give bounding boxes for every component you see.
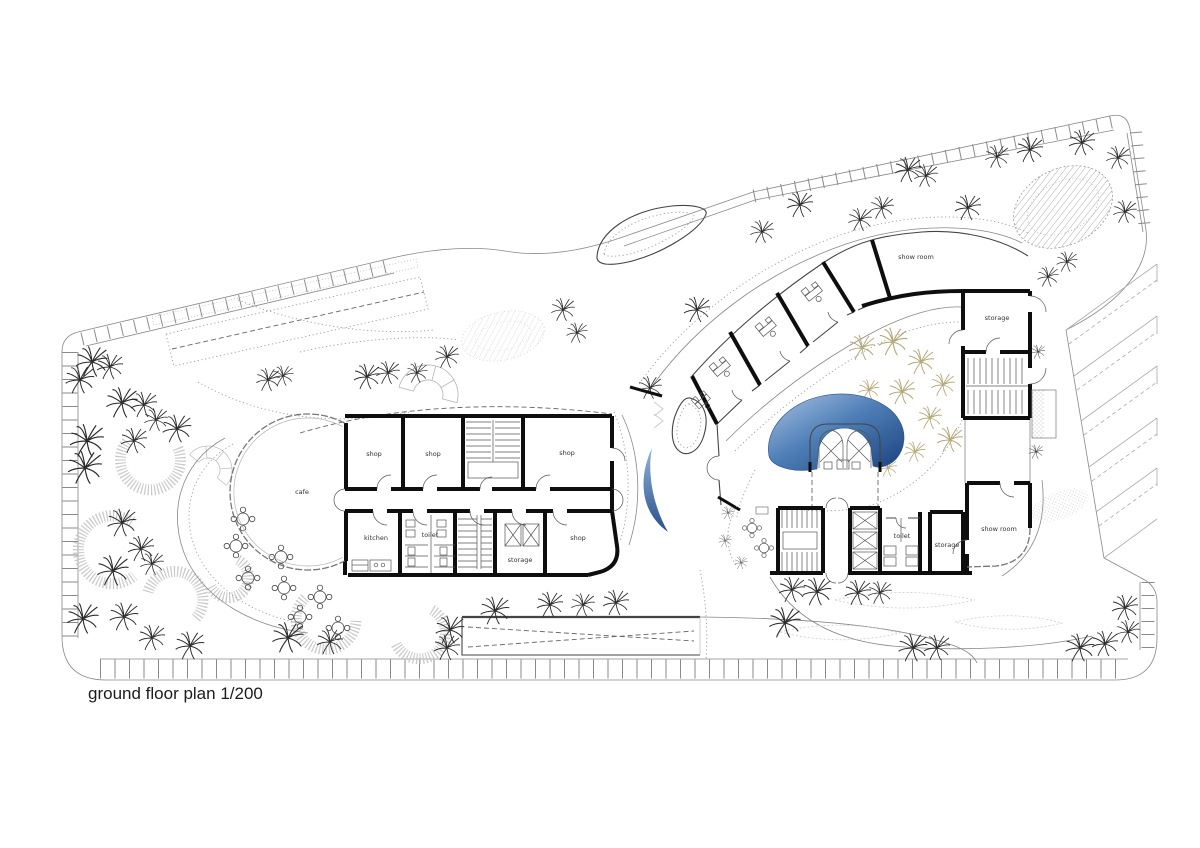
palm-tree-icon <box>1069 130 1095 155</box>
paving-chevrons <box>654 402 663 428</box>
palm-tree-icon <box>1116 620 1139 643</box>
room-label-storage-left: storage <box>508 556 533 564</box>
palm-tree-icon <box>1113 200 1136 223</box>
courtyard-tree-icon <box>937 427 963 452</box>
room-label-toilet-left: toilet <box>422 531 439 539</box>
palm-tree-icon <box>481 597 510 625</box>
palm-tree-icon <box>684 297 710 322</box>
palm-tree-icon <box>354 364 380 389</box>
palm-tree-icon <box>76 346 107 376</box>
palm-tree-icon <box>870 196 893 219</box>
palm-tree-icon <box>567 323 588 343</box>
room-label-shop-2: shop <box>425 450 441 458</box>
south-ramp <box>462 617 977 663</box>
room-label-shop-1: shop <box>366 450 382 458</box>
desk-icon <box>755 316 781 342</box>
palm-tree-icon <box>603 590 629 615</box>
elevator-icon <box>853 512 877 529</box>
palm-tree-icon <box>435 345 458 368</box>
palm-tree-icon <box>899 634 928 662</box>
palm-tree-icon <box>67 603 98 633</box>
plant-icon <box>722 507 735 520</box>
plant-icon <box>719 535 732 548</box>
palm-tree-icon <box>1112 595 1138 620</box>
room-label-kitchen: kitchen <box>364 534 388 542</box>
shrub-bed <box>1027 482 1093 529</box>
palm-tree-icon <box>1031 345 1045 359</box>
plant-icon <box>735 557 748 570</box>
left-building <box>230 407 625 575</box>
courtyard-seating <box>719 506 774 569</box>
round-table-icon <box>754 538 773 557</box>
palm-tree-icon <box>1066 634 1095 662</box>
room-label-shop-3: shop <box>559 449 575 457</box>
desk-icon <box>709 356 735 382</box>
round-table-icon <box>308 585 332 609</box>
palm-tree-icon <box>845 580 871 605</box>
palm-tree-icon <box>571 593 594 616</box>
palm-tree-icon <box>106 387 137 417</box>
palm-tree-icon <box>128 536 154 561</box>
stair-core-top <box>466 420 520 478</box>
leaf-pond <box>597 205 706 264</box>
trees-layer <box>66 130 1140 661</box>
garden-fan-steps <box>190 358 465 485</box>
palm-tree-icon <box>407 363 428 383</box>
palm-tree-icon <box>955 195 981 220</box>
water-feature-icon <box>644 448 668 532</box>
palm-tree-icon <box>985 145 1008 168</box>
room-label-shop-4: shop <box>570 534 586 542</box>
palm-tree-icon <box>787 192 813 217</box>
palm-tree-icon <box>1106 146 1129 169</box>
hatched-garden-ellipse-ne <box>999 150 1126 265</box>
palm-tree-icon <box>1038 267 1059 287</box>
band-door-arcs <box>732 312 838 400</box>
palm-tree-icon <box>139 625 165 650</box>
palm-tree-icon <box>1057 252 1078 272</box>
courtyard-tree-icon <box>905 442 926 462</box>
kitchen-counter <box>352 560 391 571</box>
palm-tree-icon <box>273 366 294 386</box>
courtyard-tree-icon <box>908 349 934 374</box>
courtyard-tree-icon <box>931 373 954 396</box>
palm-tree-icon <box>376 361 399 384</box>
desk-icon <box>801 281 826 307</box>
palm-tree-icon <box>1092 631 1118 656</box>
palm-tree-icon <box>163 415 192 443</box>
left-elevators <box>505 524 539 546</box>
room-label-storage-east: storage <box>985 314 1010 322</box>
round-table-icon <box>742 518 761 537</box>
stair-core-bottom <box>458 515 492 569</box>
palm-tree-icon <box>537 592 563 617</box>
palm-tree-icon <box>70 424 104 457</box>
palm-tree-icon <box>1017 137 1043 162</box>
room-label-show-room-top: show room <box>898 253 934 261</box>
drawing-title: ground floor plan 1/200 <box>88 684 263 703</box>
room-label-show-room-south: show room <box>981 525 1017 533</box>
courtyard-tree-icon <box>889 379 915 404</box>
elevator-icon <box>853 552 877 569</box>
round-table-icon <box>272 576 296 600</box>
left-door-arcs <box>334 448 625 525</box>
palm-tree-icon <box>750 220 773 243</box>
east-staircase <box>966 358 1028 414</box>
toilet-stalls-south <box>884 518 918 566</box>
floor-plan-canvas: cafe shop shop shop kitchen toilet stora… <box>0 0 1200 848</box>
room-label-cafe: cafe <box>295 488 309 496</box>
palm-tree-icon <box>68 451 102 484</box>
hatched-garden-ellipse-mid <box>457 304 549 368</box>
courtyard-passage-doors <box>707 424 740 510</box>
lens-garden-beds <box>780 593 1062 640</box>
room-label-storage-south: storage <box>935 541 960 549</box>
palm-tree-icon <box>779 577 805 602</box>
south-staircase <box>782 510 817 571</box>
palm-tree-icon <box>144 408 167 431</box>
palm-tree-icon <box>108 509 137 537</box>
entrance-plaza <box>644 398 707 532</box>
elevator-icon <box>853 532 877 549</box>
cafe-glass-wall <box>230 414 345 570</box>
palm-tree-icon <box>176 632 205 660</box>
courtyard-tree-icon <box>879 328 908 356</box>
room-label-toilet-south: toilet <box>894 532 911 540</box>
palm-tree-icon <box>848 208 871 231</box>
teardrop-planter <box>672 398 706 454</box>
courtyard <box>719 394 905 569</box>
south-elevator-bank <box>853 512 877 569</box>
palm-tree-icon <box>1029 445 1043 459</box>
courtyard-tree-icon <box>918 406 941 429</box>
palm-tree-icon <box>803 578 832 606</box>
palm-tree-icon <box>97 555 128 585</box>
palm-tree-icon <box>110 603 139 631</box>
toilet-stalls-left <box>405 515 455 573</box>
planter-fill <box>1032 390 1044 438</box>
palm-tree-icon <box>551 298 574 321</box>
palm-tree-icon <box>924 635 950 660</box>
